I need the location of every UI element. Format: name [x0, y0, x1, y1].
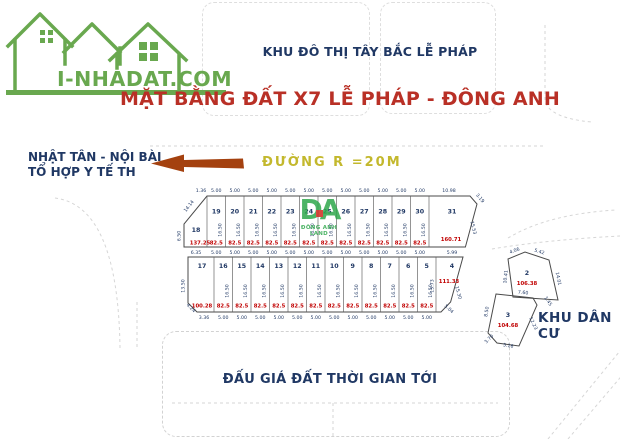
plot-top-dim: 5.00: [415, 188, 425, 194]
plot-area: 82.5: [346, 304, 359, 310]
plot-area: 82.5: [210, 241, 223, 247]
plot-number: 21: [249, 209, 258, 216]
plot-bottom-dim: 5.00: [285, 250, 295, 256]
plot-bottom-dim: 5.00: [255, 315, 265, 321]
plot-area: 82.5: [420, 304, 433, 310]
plot-bottom-dim: 5.00: [237, 315, 247, 321]
plot-height-dim: 16.50: [218, 223, 224, 236]
plot-area: 82.5: [413, 241, 426, 247]
plot-height-dim: 16.50: [262, 284, 268, 297]
plot-area: 82.5: [235, 304, 248, 310]
plot18-area: 137.25: [190, 241, 211, 247]
plot-height-dim: 16.50: [403, 223, 409, 236]
plot-height-dim: 16.50: [347, 223, 353, 236]
plot-top-dim: 5.00: [230, 188, 240, 194]
plot-height-dim: 16.50: [373, 284, 379, 297]
plot4-number: 4: [450, 263, 455, 270]
plot-bottom-dim: 5.00: [341, 250, 351, 256]
plot-height-dim: 16.50: [391, 284, 397, 297]
plot4-right-dim: 15.30: [453, 285, 462, 300]
plot-bottom-dim: 5.00: [218, 315, 228, 321]
plot-height-dim: 16.50: [366, 223, 372, 236]
plot-number: 11: [311, 263, 320, 270]
plot3-bottom-dim: 5.16: [503, 342, 514, 350]
plot18-number: 18: [192, 227, 201, 234]
plot-number: 16: [219, 263, 228, 270]
plot-height-dim: 16.50: [384, 223, 390, 236]
plot2-area: 106.38: [517, 281, 538, 287]
plot-top-dim: 5.00: [285, 188, 295, 194]
plot31-number: 31: [448, 209, 457, 216]
plot-bottom-dim: 5.00: [311, 315, 321, 321]
plot-height-dim: 16.50: [421, 223, 427, 236]
plot2-right-dim: 14.01: [554, 272, 563, 286]
plot-height-dim: 16.50: [225, 284, 231, 297]
plot-number: 19: [212, 209, 221, 216]
plot-height-dim: 16.50: [317, 284, 323, 297]
plot-number: 8: [369, 263, 373, 270]
plot17-number: 17: [198, 263, 207, 270]
plot17-bottom-dim: 3.36: [199, 315, 209, 321]
plot-area: 82.5: [365, 304, 378, 310]
plot-number: 28: [378, 209, 387, 216]
plot-bottom-dim: 5.00: [248, 250, 258, 256]
plot-bottom-dim: 5.00: [230, 250, 240, 256]
plot-area: 82.5: [395, 241, 408, 247]
plot-area: 82.5: [402, 304, 415, 310]
plot-bottom-dim: 5.00: [396, 250, 406, 256]
plot-top-dim: 5.00: [248, 188, 258, 194]
plot-bottom-dim: 5.00: [292, 315, 302, 321]
plot-height-dim: 16.50: [280, 284, 286, 297]
plot-bottom-dim: 5.00: [348, 315, 358, 321]
plot-height-dim: 16.50: [236, 223, 242, 236]
plot-number: 6: [406, 263, 411, 270]
plot-area: 82.5: [217, 304, 230, 310]
watermark-square-icon: [316, 210, 323, 217]
bottom-row-cells: 1616.5082.55.001516.5082.55.001416.5082.…: [214, 257, 434, 321]
plot-number: 9: [351, 263, 355, 270]
plot-height-dim: 16.50: [336, 284, 342, 297]
plot-number: 30: [415, 209, 424, 216]
plot-number: 5: [425, 263, 429, 270]
plot-height-dim: 16.50: [354, 284, 360, 297]
plot-bottom-dim: 5.00: [422, 315, 432, 321]
plot-area: 82.5: [309, 304, 322, 310]
plot-bottom-dim: 5.00: [274, 315, 284, 321]
plot-top-dim: 5.00: [359, 188, 369, 194]
plot-bottom-dim: 5.00: [329, 315, 339, 321]
plot-height-dim: 16.50: [299, 284, 305, 297]
plot-top-dim: 5.00: [267, 188, 277, 194]
plot-area: 82.5: [383, 304, 396, 310]
plot-bottom-dim: 5.00: [415, 250, 425, 256]
plot-area: 82.5: [265, 241, 278, 247]
plot-number: 14: [256, 263, 265, 270]
plot17-left-dim: 13.50: [181, 279, 187, 292]
plot-number: 22: [267, 209, 276, 216]
plot2-bottom-dim: 7.60: [518, 290, 529, 297]
plot-height-dim: 16.50: [273, 223, 279, 236]
plot-area: 82.5: [339, 241, 352, 247]
plot-area: 82.5: [291, 304, 304, 310]
plot-bottom-dim: 5.00: [378, 250, 388, 256]
plot2-number: 2: [525, 270, 529, 277]
plot-top-dim: 5.00: [341, 188, 351, 194]
plot-area: 82.5: [328, 304, 341, 310]
plot-number: 12: [293, 263, 302, 270]
plot-bottom-dim: 5.00: [366, 315, 376, 321]
plot4-corner-dim: 5.04: [443, 304, 455, 315]
plot-number: 13: [274, 263, 283, 270]
plot2-outline: [508, 252, 558, 300]
plot-bottom-dim: 5.00: [385, 315, 395, 321]
plot18-bottom-dim: 6.35: [191, 250, 201, 256]
plot31-top-dim: 10.98: [442, 188, 455, 194]
plot-area: 82.5: [254, 304, 267, 310]
plot-height-dim: 16.50: [410, 284, 416, 297]
plot-number: 20: [230, 209, 239, 216]
plot-top-dim: 5.00: [211, 188, 221, 194]
plot-area: 82.5: [247, 241, 260, 247]
plot18-top-dim: 1.36: [196, 188, 206, 194]
plot-number: 15: [237, 263, 246, 270]
plot3-left-dim: 8.50: [483, 306, 491, 317]
plot-number: 7: [388, 263, 392, 270]
plot-area: 82.5: [376, 241, 389, 247]
plot-number: 10: [330, 263, 339, 270]
plot-number: 27: [360, 209, 369, 216]
plot-area: 82.5: [284, 241, 297, 247]
watermark-name: ĐÔNG ANH LAND: [293, 225, 345, 237]
watermark-logo: DA ĐÔNG ANH LAND: [293, 196, 345, 237]
plot-bottom-dim: 5.00: [403, 315, 413, 321]
plot-area: 82.5: [358, 241, 371, 247]
plot31-bottom-dim: 5.99: [447, 250, 457, 256]
plot-height-dim: 16.50: [255, 223, 261, 236]
plot-area: 82.5: [321, 241, 334, 247]
plot3-area: 104.68: [498, 323, 519, 329]
plot4-left-dim: 15.73: [430, 279, 436, 292]
plot-height-dim: 16.50: [243, 284, 249, 297]
plot31-right-dim: 15.53: [469, 221, 478, 235]
plot-bottom-dim: 5.00: [211, 250, 221, 256]
plot3-number: 3: [506, 312, 510, 319]
plot-bottom-dim: 5.00: [322, 250, 332, 256]
plot-bottom-dim: 5.00: [359, 250, 369, 256]
plot-area: 82.5: [272, 304, 285, 310]
plot-bottom-dim: 5.00: [304, 250, 314, 256]
plot-number: 29: [397, 209, 406, 216]
plot3-bottomleft-dim: 3.70: [483, 333, 495, 345]
plot18-left-dim: 6.50: [177, 231, 183, 241]
plot2-bottomright-dim: 1.45: [542, 295, 553, 307]
plot-area: 82.5: [302, 241, 315, 247]
plot-top-dim: 5.00: [396, 188, 406, 194]
plot-top-dim: 5.00: [378, 188, 388, 194]
plot-area: 82.5: [228, 241, 241, 247]
plot-bottom-dim: 5.00: [267, 250, 277, 256]
plot2-left-dim: 10.41: [502, 270, 509, 284]
plot4-area: 111.33: [439, 279, 460, 285]
plot31-area: 160.71: [441, 237, 462, 243]
